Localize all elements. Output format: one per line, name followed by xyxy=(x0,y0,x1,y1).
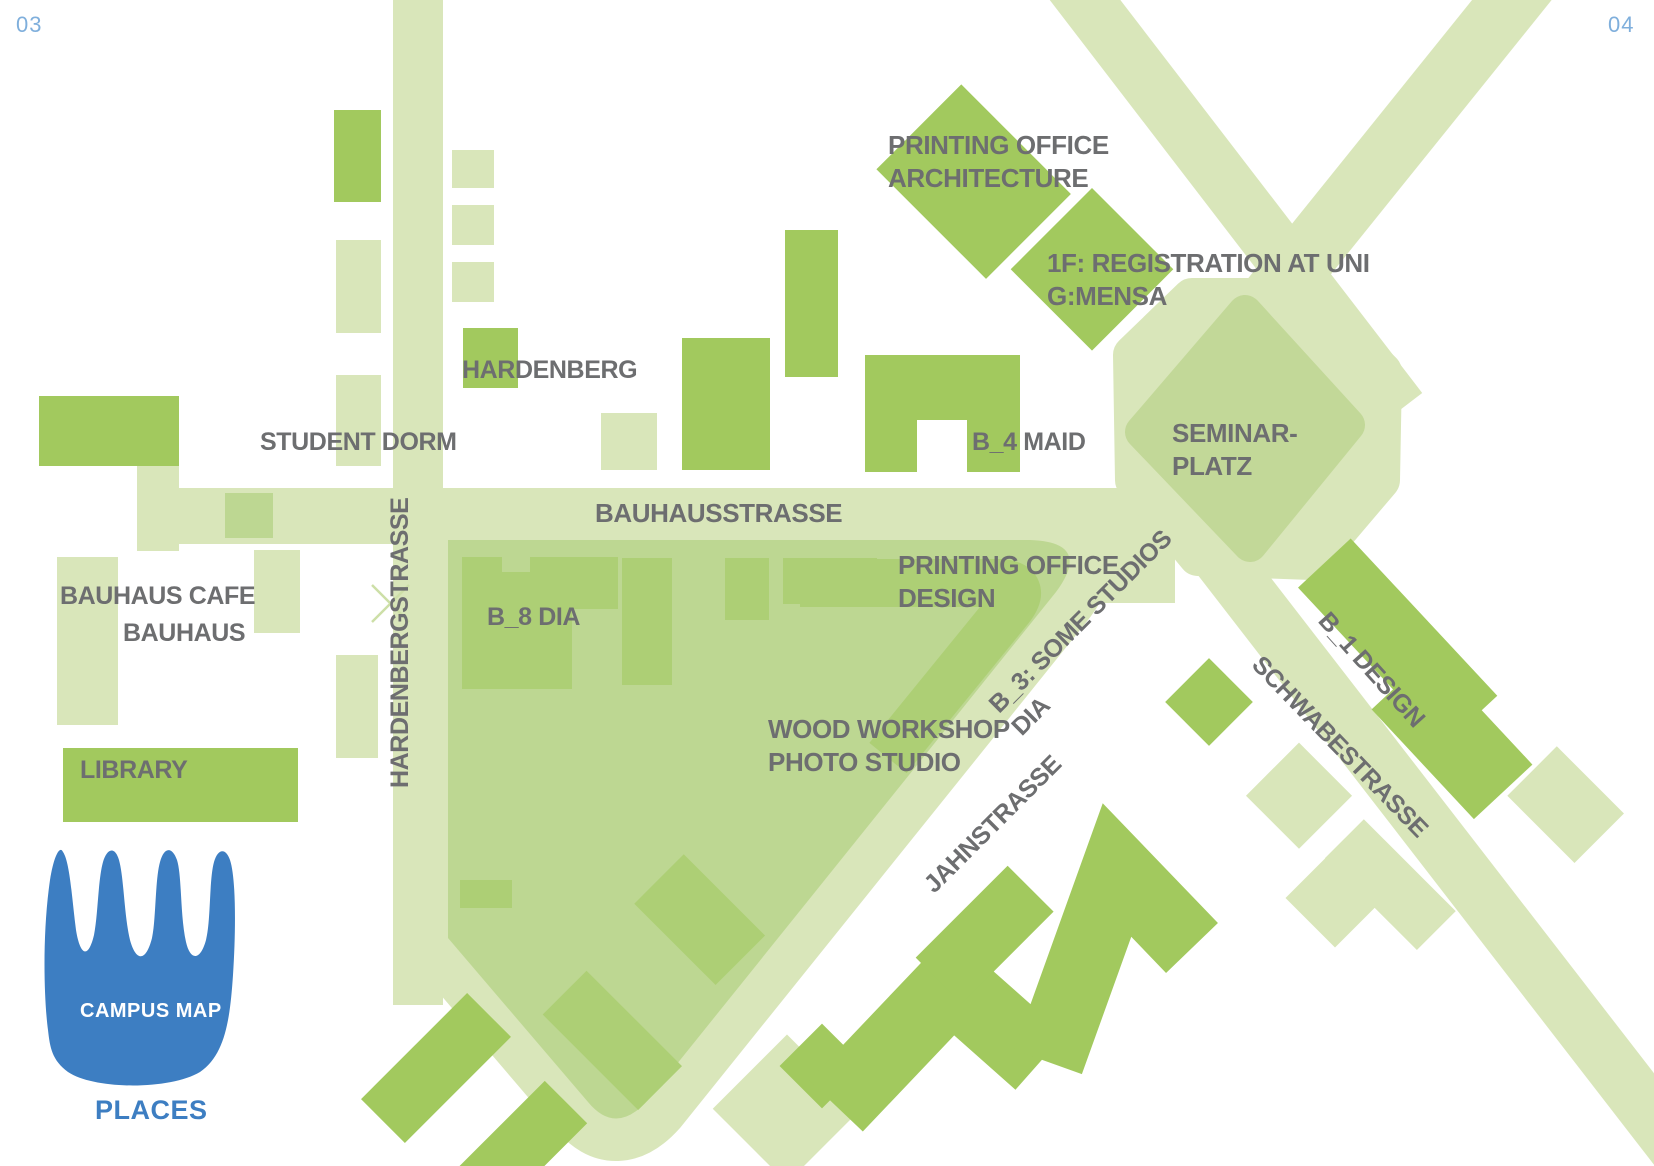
light-building xyxy=(254,550,300,633)
label-wood-workshop: WOOD WORKSHOP PHOTO STUDIO xyxy=(768,716,1010,775)
label-printing-office-architecture: PRINTING OFFICE ARCHITECTURE xyxy=(888,132,1109,191)
label-line: 1F: REGISTRATION AT UNI xyxy=(1047,250,1370,276)
path-fragment xyxy=(137,466,179,551)
light-building xyxy=(452,150,494,188)
building-bar xyxy=(361,993,511,1143)
label-line: G:MENSA xyxy=(1047,283,1370,309)
light-building xyxy=(336,240,381,333)
label-bauhaus: BAUHAUS xyxy=(123,621,245,646)
campus-map-logo-label: CAMPUS MAP xyxy=(80,1000,222,1023)
campus-map-page: 03 04 PRINTING OFFICE ARCHITECTURE 1F: R… xyxy=(0,0,1654,1166)
label-line: PRINTING OFFICE xyxy=(888,132,1109,158)
light-building xyxy=(336,655,378,758)
building-b8-dia-wing xyxy=(622,558,672,685)
label-line: ARCHITECTURE xyxy=(888,165,1109,191)
label-bauhausstrasse: BAUHAUSSTRASSE xyxy=(595,500,842,526)
building-zigzag xyxy=(836,984,1040,1106)
block-building xyxy=(460,880,512,908)
building xyxy=(785,230,838,377)
label-line: SEMINAR- xyxy=(1172,420,1297,446)
label-registration: 1F: REGISTRATION AT UNI G:MENSA xyxy=(1047,250,1370,309)
label-line: PLATZ xyxy=(1172,453,1297,479)
building xyxy=(334,110,381,202)
block-building xyxy=(725,558,769,620)
building xyxy=(682,338,770,470)
page-number-left: 03 xyxy=(16,12,42,38)
places-caption: PLACES xyxy=(95,1095,208,1126)
label-line: WOOD WORKSHOP xyxy=(768,716,1010,742)
label-line: PRINTING OFFICE xyxy=(898,552,1119,578)
label-bauhaus-cafe: BAUHAUS CAFE xyxy=(60,584,255,609)
label-hardenberg: HARDENBERG xyxy=(462,358,637,383)
label-hardenbergstrasse: HARDENBERGSTRASSE xyxy=(388,498,413,788)
light-building xyxy=(601,413,657,470)
building-zigzag xyxy=(1048,870,1192,1062)
label-student-dorm: STUDENT DORM xyxy=(260,430,457,455)
light-building xyxy=(452,205,494,245)
label-line: PHOTO STUDIO xyxy=(768,749,1010,775)
page-number-right: 04 xyxy=(1608,12,1634,38)
label-b8-dia: B_8 DIA xyxy=(487,605,580,630)
building-diamond xyxy=(1165,658,1253,746)
label-seminarplatz: SEMINAR- PLATZ xyxy=(1172,420,1297,479)
label-b4-maid: B_4 MAID xyxy=(972,430,1086,455)
light-building xyxy=(452,262,494,302)
street-square xyxy=(225,493,273,538)
campus-map-logo-icon xyxy=(45,850,235,1086)
label-library: LIBRARY xyxy=(80,758,187,783)
building-bauhaus-cafe xyxy=(39,396,179,466)
